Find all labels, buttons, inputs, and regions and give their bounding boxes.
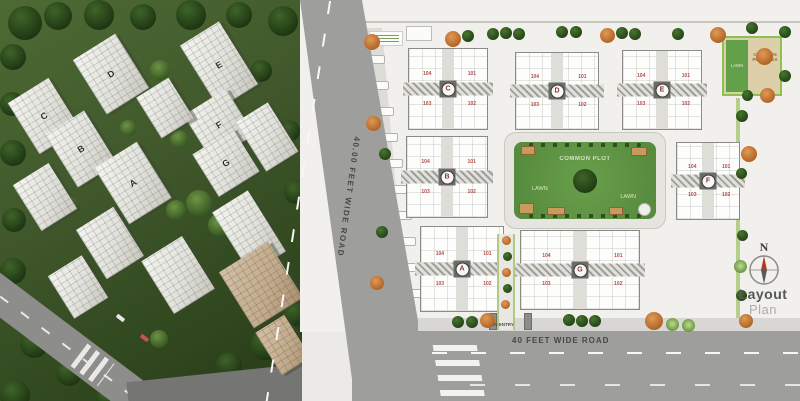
unit-number: 104 [531,74,539,80]
tree-icon [779,70,791,82]
unit-number: 101 [682,73,690,79]
unit-number: 101 [467,159,475,165]
common-plot-label: COMMON PLOT [514,156,656,162]
tree-icon [742,90,753,101]
flowering-tree-icon [760,88,775,103]
flowering-tree-icon [645,312,663,330]
tree-icon [736,168,747,179]
tree-icon [487,28,499,40]
common-plot: COMMON PLOT LAWN LAWN [504,132,666,229]
rooftop-letter: G [220,157,231,169]
building-letter-badge: C [441,82,455,96]
unit-number: 102 [483,281,491,287]
unit-number: 101 [468,71,476,77]
flowering-tree-icon [364,34,380,50]
flowering-tree-icon [370,276,384,290]
unit-number: 102 [467,189,475,195]
zebra-crossing [431,336,485,396]
building-letter-badge: D [550,84,564,98]
unit-number: 104 [637,73,645,79]
car [140,334,150,343]
plan-caption: Layout Plan [733,286,793,317]
tree-icon [120,120,136,136]
unit-number: 101 [578,74,586,80]
tree-icon [563,314,575,326]
children-play-area: LAWN CHILDREN PLAY AREA [722,36,782,96]
flowering-tree-icon [600,28,615,43]
tree-icon [570,26,582,38]
compass-north-letter: N [760,240,769,254]
building-core: C [440,81,457,98]
tree-icon [130,4,156,30]
unit-number: 104 [423,71,431,77]
flowering-tree-icon [501,300,510,309]
tree-icon [186,190,212,216]
tree-icon [150,330,168,348]
unit-number: 103 [531,102,539,108]
rooftop-letter: D [106,68,117,80]
bush-row [529,143,641,147]
tree-icon [170,130,188,148]
caption-line1: Layout [733,286,793,302]
flowering-tree-icon [445,31,461,47]
unit-number: 102 [468,101,476,107]
tree-icon [0,140,26,166]
tree-icon [736,110,748,122]
unit-number: 104 [688,164,696,170]
building-block-plan: 104 101 103 102 C [408,48,488,130]
unit-number: 104 [436,251,444,257]
aerial-render: DECFBGA [0,0,302,401]
tree-icon [2,208,26,232]
flowering-tree-icon [366,116,381,131]
tree-icon [779,26,791,38]
bench [609,207,623,215]
building-letter-badge: F [701,174,715,188]
unit-number: 103 [423,101,431,107]
tree-icon [379,148,391,160]
building-block-plan: 104 101 103 102 E [622,50,702,130]
tree-icon [556,26,568,38]
tree-icon [500,27,512,39]
building-core: A [454,261,471,278]
unit-number: 104 [421,159,429,165]
tree-icon [503,252,512,261]
unit-number: 103 [637,101,645,107]
layout-plan-image: DECFBGA 40.00 FEET WIDE ROAD 40 FEET WID… [0,0,800,401]
lawn-label-right: LAWN [620,194,636,200]
tree-icon [0,44,26,70]
building-letter-badge: B [440,170,454,184]
tree-icon [616,27,628,39]
tree-icon [44,2,72,30]
building-core: G [572,262,589,279]
unit-number: 101 [614,253,622,259]
flowering-tree-icon [502,268,511,277]
unit-number: 104 [542,253,550,259]
building-block-plan: 104 101 103 102 D [515,52,599,130]
flowering-tree-icon [502,236,511,245]
tree-icon [629,28,641,40]
rooftop-letter: F [214,119,224,130]
building-3d: D [73,34,149,115]
unit-number: 101 [483,251,491,257]
bench [521,146,535,155]
tree-icon [513,28,525,40]
building-core: F [700,173,717,190]
tree-icon [226,2,252,28]
building-core: D [549,83,566,100]
tree-icon [0,380,30,401]
tree-icon [376,226,388,238]
compound-wall-top [362,21,800,23]
rooftop-letter: E [214,59,224,71]
unit-number: 102 [722,192,730,198]
building-letter-badge: A [455,262,469,276]
unit-number: 102 [682,101,690,107]
caption-line2: Plan [733,302,793,317]
tree-icon [166,200,186,220]
unit-number: 103 [421,189,429,195]
unit-number: 102 [578,102,586,108]
gate-pillar [524,313,532,330]
bottom-road-centerline-2 [470,384,800,386]
tree-icon [672,28,684,40]
building-block-plan: 104 101 103 102 A [420,226,504,312]
tree-icon [503,284,512,293]
building-letter-badge: G [573,263,587,277]
building-letter-badge: E [655,83,669,97]
flowering-tree-icon [756,48,773,65]
bench [519,203,534,214]
building-block-plan: 104 101 103 102 F [676,142,740,220]
building-core: B [439,169,456,186]
unit-number: 103 [688,192,696,198]
tree-icon [8,6,42,40]
entry-walkway [497,234,515,330]
bush-row [529,214,641,218]
gazebo [638,203,651,216]
tree-icon [452,316,464,328]
play-area-lawn: LAWN [726,40,748,92]
aerial-road-bottom [126,362,302,401]
unit-number: 103 [436,281,444,287]
bench [631,147,647,156]
palm-tree-icon [666,318,679,331]
unit-number: 103 [542,281,550,287]
unit-number: 101 [722,164,730,170]
bottom-road-centerline [432,352,800,354]
rooftop-letter: C [39,110,50,122]
central-tree-icon [573,169,597,193]
tree-icon [746,22,758,34]
lawn-label-left: LAWN [532,186,548,192]
utility-structure [406,26,432,41]
north-compass-icon: N [741,240,787,288]
tree-icon [176,0,206,30]
palm-tree-icon [682,319,695,332]
flowering-tree-icon [741,146,757,162]
tree-icon [576,315,588,327]
bottom-road-label: 40 FEET WIDE ROAD [512,336,609,345]
tree-icon [462,30,474,42]
unit-number: 102 [614,281,622,287]
rooftop-letter: B [76,143,87,155]
play-area-lawn-label: LAWN [726,63,748,68]
building-core: E [654,82,671,99]
flowering-tree-icon [710,27,726,43]
flowering-tree-icon [480,313,495,328]
car [116,314,126,323]
tree-icon [268,6,298,36]
bench [547,207,565,215]
building-block-plan: 104 101 103 102 B [406,136,488,218]
tree-icon [84,0,114,30]
building-block-plan: 104 101 103 102 G [520,230,640,310]
building-3d [141,236,215,314]
tree-icon [589,315,601,327]
rooftop-letter: A [128,177,139,189]
tree-icon [466,316,478,328]
